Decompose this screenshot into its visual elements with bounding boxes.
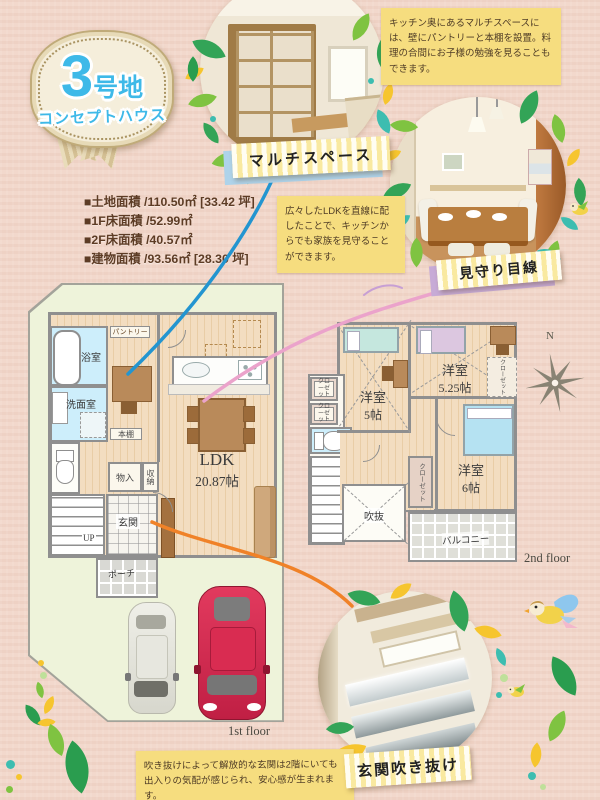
closet-nw-1: クローゼット bbox=[310, 377, 338, 401]
bookshelf-label: 本棚 bbox=[110, 428, 142, 440]
pantry-label: パントリー bbox=[110, 326, 150, 338]
tag-entrance-void: 玄関吹き抜け bbox=[344, 746, 472, 789]
chair-525jo bbox=[496, 345, 509, 355]
ldk-partition bbox=[157, 312, 160, 462]
chair-5jo bbox=[382, 366, 393, 381]
dining-chair bbox=[243, 428, 255, 444]
compass-icon bbox=[519, 347, 591, 419]
leaf-dot bbox=[210, 116, 216, 122]
badge-lot-label: 号地 bbox=[93, 68, 143, 104]
leaf-icon bbox=[492, 648, 510, 666]
leaf-icon bbox=[523, 742, 548, 767]
stairs-up-label: UP bbox=[82, 533, 96, 543]
balcony-label: バルコニー bbox=[442, 531, 490, 547]
leaf-dot bbox=[6, 760, 15, 769]
ldk-label: LDK 20.87帖 bbox=[160, 450, 274, 490]
multispace-desk bbox=[112, 366, 152, 402]
leaf-dot bbox=[528, 772, 536, 780]
room-5jo-label: 洋室 5帖 bbox=[344, 387, 402, 423]
closet-label: クローゼット bbox=[314, 381, 334, 397]
car-white bbox=[128, 602, 176, 714]
caption-1st-floor: 1st floor bbox=[228, 724, 270, 739]
leaf-dot bbox=[38, 660, 44, 666]
kitchen-sink bbox=[182, 362, 210, 378]
closet-label: クローゼット bbox=[498, 359, 507, 395]
leaf-dot bbox=[40, 672, 47, 679]
area-line: ■1F床面積 /52.99㎡ bbox=[84, 212, 255, 231]
kitchen-island-front bbox=[168, 384, 270, 395]
room-6jo-label: 洋室 6帖 bbox=[443, 460, 499, 496]
bed-6jo bbox=[463, 404, 514, 456]
compass-n-label: N bbox=[546, 330, 554, 342]
note-ldk: 広々したLDKを直線に配したことで、キッチンからでも家族を見守ることができます。 bbox=[277, 196, 405, 273]
car-red bbox=[198, 586, 266, 720]
dining-chair bbox=[187, 406, 199, 422]
toilet-bowl-1f bbox=[56, 460, 74, 484]
closet-nw-2: クローゼット bbox=[310, 403, 338, 425]
leaf-dot bbox=[6, 786, 13, 793]
bird-icon bbox=[524, 588, 582, 636]
leaf-icon bbox=[542, 711, 573, 742]
void-label: 吹抜 bbox=[364, 508, 384, 523]
desk-525jo bbox=[490, 326, 516, 345]
sofa bbox=[254, 486, 276, 558]
tag-entrance-void-label: 玄関吹き抜け bbox=[356, 753, 459, 781]
stairs-1f bbox=[50, 494, 105, 556]
entrance-label: 玄関 bbox=[116, 514, 140, 529]
leaf-icon bbox=[544, 656, 583, 695]
note-entrance-text: 吹き抜けによって解放的な玄関は2階にいても出入りの気配が感じられ、安心感が生まれ… bbox=[144, 759, 338, 800]
tag-watching-label: 見守り目線 bbox=[458, 257, 539, 284]
room-bath-label: 浴室 bbox=[81, 349, 101, 364]
leaf-icon bbox=[32, 682, 48, 698]
closet-label: クローゼット bbox=[416, 463, 426, 502]
room-washroom-label: 洗面室 bbox=[66, 396, 96, 411]
desk-5jo bbox=[393, 360, 408, 388]
area-line: ■2F床面積 /40.57㎡ bbox=[84, 231, 255, 250]
dining-chair bbox=[187, 428, 199, 444]
small-bird-icon bbox=[506, 680, 528, 700]
storage-mono: 物入 bbox=[108, 462, 142, 492]
kitchen-storage-1 bbox=[233, 320, 261, 348]
porch-label: ポーチ bbox=[108, 566, 136, 581]
balcony: バルコニー bbox=[408, 512, 517, 562]
closet-525: クローゼット bbox=[487, 357, 517, 397]
flyer-page: 浴室 洗面室 UP パントリー 本棚 bbox=[0, 0, 600, 800]
leaf-dot bbox=[540, 784, 546, 790]
note-multispace: キッチン奥にあるマルチスペースには、壁にパントリーと本棚を設置。料理の合間にお子… bbox=[381, 8, 561, 85]
bed-5jo bbox=[343, 327, 399, 353]
note-entrance: 吹き抜けによって解放的な玄関は2階にいても出入りの気配が感じられ、安心感が生まれ… bbox=[136, 749, 355, 800]
dining-table bbox=[198, 398, 246, 452]
room-525jo-label: 洋室 5.25帖 bbox=[424, 360, 486, 396]
storage-shuno: 収納 bbox=[142, 462, 159, 492]
badge-house-label: コンセプトハウス bbox=[38, 104, 167, 129]
leaf-dot bbox=[368, 78, 374, 84]
washer bbox=[80, 412, 106, 438]
dining-chair bbox=[243, 406, 255, 422]
bathtub bbox=[53, 330, 81, 386]
badge-rosette: 3 号地 コンセプトハウス bbox=[30, 30, 174, 148]
area-line: ■土地面積 /110.50㎡ [33.42 坪] bbox=[84, 193, 255, 212]
small-bird-icon bbox=[568, 198, 592, 218]
note-ldk-text: 広々したLDKを直線に配したことで、キッチンからでも家族を見守ることができます。 bbox=[285, 206, 389, 263]
leaf-dot bbox=[16, 774, 22, 780]
closet-label: クローゼット bbox=[314, 407, 334, 421]
closet-mid: クローゼット bbox=[408, 456, 433, 508]
void-fukinuke: 吹抜 bbox=[342, 484, 406, 542]
leaf-dot bbox=[496, 692, 502, 698]
area-list: ■土地面積 /110.50㎡ [33.42 坪] ■1F床面積 /52.99㎡ … bbox=[84, 193, 255, 269]
note-multispace-text: キッチン奥にあるマルチスペースには、壁にパントリーと本棚を設置。料理の合間にお子… bbox=[389, 18, 551, 75]
area-line: ■建物面積 /93.56㎡ [28.30 坪] bbox=[84, 250, 255, 269]
bed-525jo bbox=[416, 326, 466, 354]
tag-multispace-label: マルチスペース bbox=[248, 143, 373, 170]
leaf-icon bbox=[40, 696, 58, 714]
kitchen-stove bbox=[238, 360, 262, 380]
badge-number: 3 bbox=[61, 51, 93, 103]
multispace-chair bbox=[121, 402, 137, 414]
leaf-icon bbox=[565, 149, 582, 166]
caption-2nd-floor: 2nd floor bbox=[524, 551, 570, 566]
